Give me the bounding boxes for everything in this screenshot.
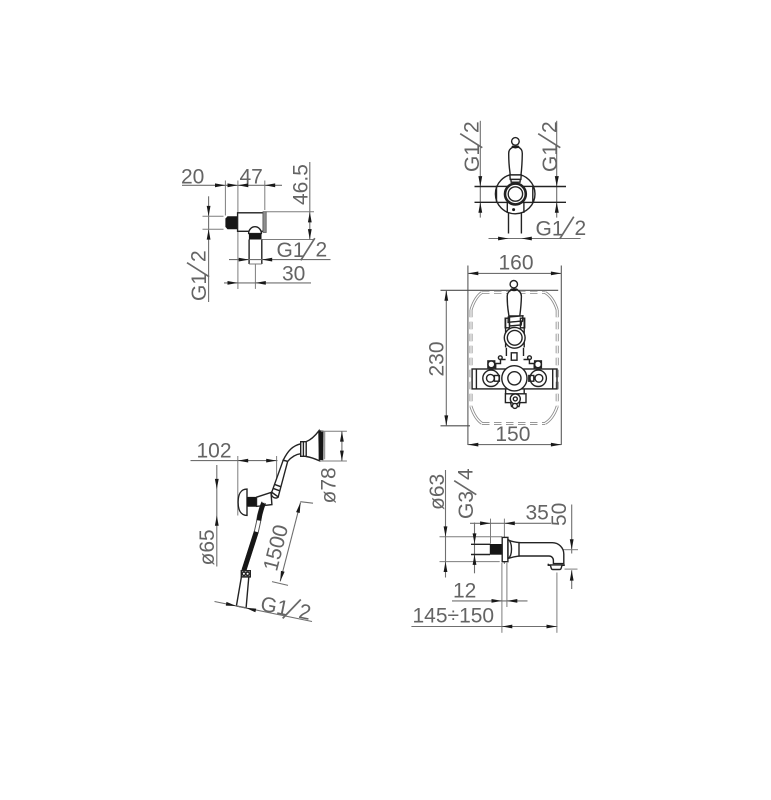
svg-text:160: 160 <box>498 252 533 275</box>
svg-text:230: 230 <box>426 341 449 376</box>
svg-text:12: 12 <box>453 580 476 603</box>
svg-text:G1: G1 <box>536 218 564 241</box>
svg-text:35: 35 <box>526 502 549 525</box>
svg-text:ø63: ø63 <box>426 474 449 510</box>
svg-text:4: 4 <box>455 468 478 480</box>
svg-text:ø65: ø65 <box>196 529 219 565</box>
svg-text:47: 47 <box>240 166 263 189</box>
svg-text:2: 2 <box>539 121 562 133</box>
svg-text:2: 2 <box>461 121 484 133</box>
svg-text:2: 2 <box>187 250 210 262</box>
svg-text:G1: G1 <box>188 273 211 301</box>
svg-text:150: 150 <box>495 423 530 446</box>
svg-text:145÷150: 145÷150 <box>413 605 495 628</box>
svg-text:50: 50 <box>548 503 571 526</box>
svg-text:G1: G1 <box>539 144 562 172</box>
svg-text:102: 102 <box>196 439 231 462</box>
svg-text:30: 30 <box>282 263 305 286</box>
svg-text:G1: G1 <box>277 239 305 262</box>
svg-text:2: 2 <box>575 217 587 240</box>
svg-text:G3: G3 <box>455 491 478 519</box>
svg-text:46.5: 46.5 <box>290 164 313 205</box>
svg-text:2: 2 <box>316 239 328 262</box>
svg-text:G1: G1 <box>461 144 484 172</box>
svg-text:ø78: ø78 <box>318 467 341 503</box>
svg-text:20: 20 <box>181 166 204 189</box>
